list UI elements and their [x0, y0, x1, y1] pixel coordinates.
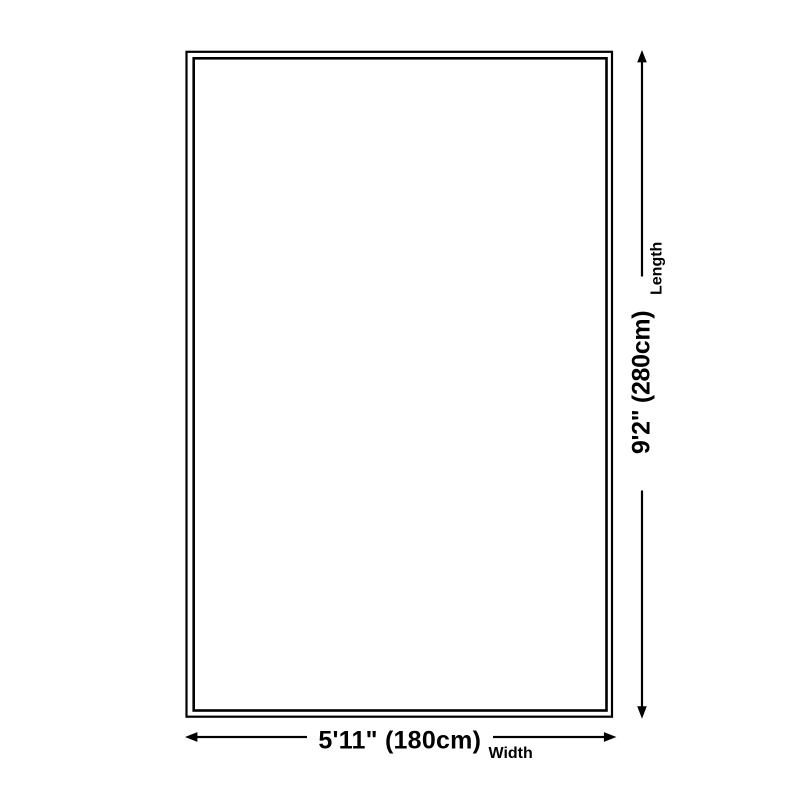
- svg-text:Width: Width: [489, 745, 533, 762]
- svg-text:5'11" (180cm): 5'11" (180cm): [318, 726, 481, 754]
- svg-text:Length: Length: [649, 242, 666, 295]
- svg-text:9'2" (280cm): 9'2" (280cm): [628, 311, 656, 454]
